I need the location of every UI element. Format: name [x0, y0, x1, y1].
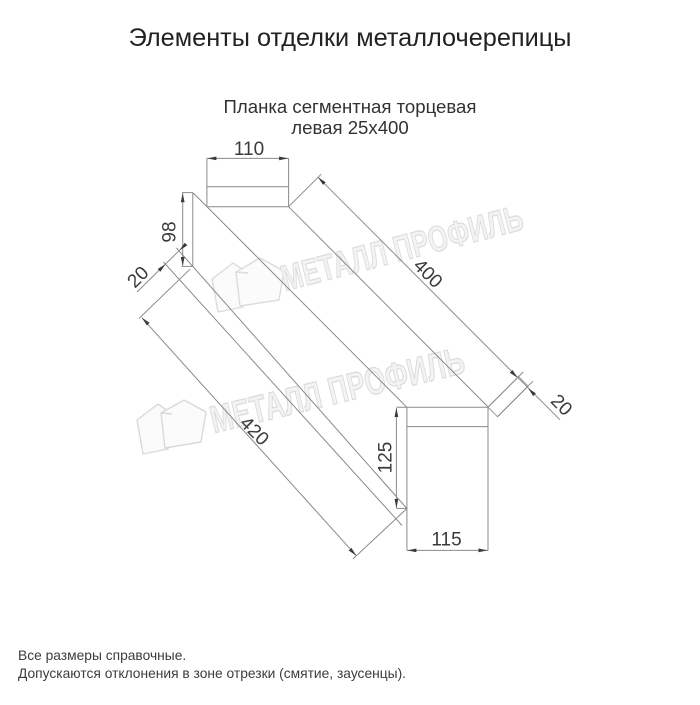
svg-text:98: 98: [160, 221, 181, 242]
svg-text:левая 25х400: левая 25х400: [291, 117, 408, 138]
svg-text:Планка сегментная торцевая: Планка сегментная торцевая: [224, 96, 477, 117]
svg-text:115: 115: [431, 530, 461, 551]
svg-text:110: 110: [234, 139, 264, 160]
svg-text:Допускаются отклонения в зоне: Допускаются отклонения в зоне отрезки (с…: [18, 666, 406, 681]
svg-text:Все размеры справочные.: Все размеры справочные.: [18, 648, 186, 663]
svg-text:Элементы отделки металлочерепи: Элементы отделки металлочерепицы: [129, 24, 572, 52]
svg-text:125: 125: [376, 442, 397, 474]
